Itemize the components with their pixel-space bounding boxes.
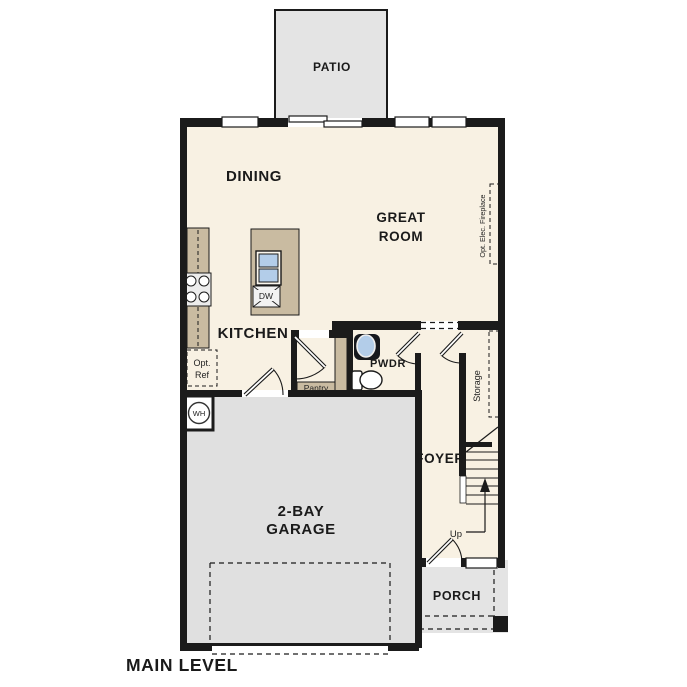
room-label-dining: DINING bbox=[226, 168, 282, 185]
greatroom-south-wall bbox=[332, 321, 505, 330]
burner-icon bbox=[186, 276, 196, 286]
kitchen-garage-wall bbox=[183, 390, 422, 397]
room-label-garage: 2-BAY bbox=[278, 503, 325, 520]
burner-icon bbox=[199, 292, 209, 302]
window-greatroom bbox=[432, 117, 466, 127]
window-porch bbox=[466, 558, 497, 568]
up-label: Up bbox=[450, 529, 462, 540]
sink-basin bbox=[259, 269, 278, 282]
room-label-garage: GARAGE bbox=[266, 521, 335, 538]
floorplan-drawing: PATIO DINING GREAT ROOM KITCHEN PWDR Pan… bbox=[0, 0, 687, 687]
patio-slider-panel bbox=[324, 121, 362, 127]
porch-column bbox=[493, 616, 508, 632]
powder-east-wall bbox=[415, 353, 421, 397]
room-label-kitchen: KITCHEN bbox=[218, 325, 289, 342]
water-heater-label: WH bbox=[193, 409, 206, 418]
plan-title: MAIN LEVEL bbox=[126, 655, 238, 675]
garage-foyer-wall bbox=[415, 390, 422, 648]
window-greatroom bbox=[395, 117, 429, 127]
room-label-great-room: ROOM bbox=[379, 229, 423, 244]
pantry-door-gap bbox=[299, 330, 329, 338]
room-label-powder: PWDR bbox=[370, 358, 406, 370]
room-label-foyer: FOYER bbox=[415, 451, 465, 466]
room-label-storage: Storage bbox=[472, 370, 482, 402]
burner-icon bbox=[186, 292, 196, 302]
patio-slider-panel bbox=[289, 116, 327, 122]
room-label-pantry: Pantry bbox=[304, 383, 329, 393]
garage-door-header bbox=[212, 643, 388, 646]
room-label-porch: PORCH bbox=[433, 589, 481, 603]
burner-icon bbox=[199, 276, 209, 286]
room-label-great-room: GREAT bbox=[376, 210, 425, 225]
garage-wall-bottom-right bbox=[388, 643, 419, 651]
stair-handrail bbox=[460, 476, 466, 503]
opt-ref-label: Opt. bbox=[193, 358, 210, 368]
opt-fireplace-label: Opt. Elec. Fireplace bbox=[478, 194, 487, 257]
exterior-wall-left bbox=[180, 118, 187, 651]
exterior-wall-right bbox=[498, 118, 505, 568]
garage-wall-bottom-left bbox=[180, 643, 212, 651]
room-label-patio: PATIO bbox=[313, 60, 351, 74]
sink-basin bbox=[259, 254, 278, 267]
stair-landing-wall bbox=[466, 442, 492, 447]
floorplan-canvas: PATIO DINING GREAT ROOM KITCHEN PWDR Pan… bbox=[0, 0, 687, 687]
powder-sink-bowl bbox=[357, 335, 375, 357]
opt-ref-label: Ref bbox=[195, 370, 210, 380]
toilet-bowl bbox=[360, 371, 382, 389]
window-dining bbox=[222, 117, 258, 127]
dishwasher-label: DW bbox=[259, 291, 273, 301]
